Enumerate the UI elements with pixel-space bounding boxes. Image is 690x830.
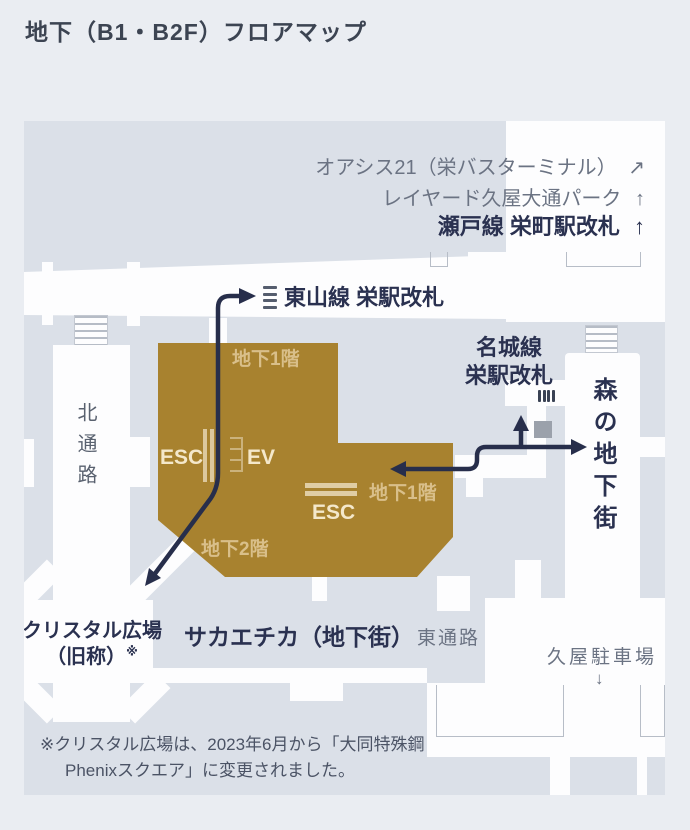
label-crystal-line1: クリスタル広場 xyxy=(24,618,168,644)
dest-meijo-line2: 栄駅改札 xyxy=(448,362,570,390)
footnote-line2: Phenixスクエア」に変更されました。 xyxy=(65,762,355,779)
down-arrow-icon: ↓ xyxy=(595,670,604,687)
dest-meijo-line1: 名城線 xyxy=(448,334,570,362)
floor-map: 地下1階 ESC EV ESC 地下1階 地下2階 オアシス21（栄バスターミナ… xyxy=(24,121,665,795)
label-crystal-line2: （旧称）※ xyxy=(24,644,168,670)
route-meijo-junction xyxy=(402,447,576,469)
dest-layered-park-label: レイヤード久屋大通パーク xyxy=(382,188,621,210)
note-mark: ※ xyxy=(126,644,138,658)
dest-higashiyama: 東山線 栄駅改札 xyxy=(284,287,444,309)
dest-meijo: 名城線 栄駅改札 xyxy=(448,334,570,389)
dest-layered-park: レイヤード久屋大通パーク ↑ xyxy=(382,189,645,209)
dest-setosen: 瀬戸線 栄町駅改札 ↑ xyxy=(438,216,645,238)
arrowhead-left-building xyxy=(390,461,406,477)
dest-mori-chikagai: 森の地下街 xyxy=(590,377,614,537)
page-title: 地下（B1・B2F）フロアマップ xyxy=(25,13,367,47)
arrowhead-up-meijo xyxy=(513,415,529,431)
up-arrow-icon: ↑ xyxy=(634,214,645,239)
footnote-line1: ※クリスタル広場は、2023年6月から「大同特殊鋼 xyxy=(40,736,425,753)
ticket-gate-horizontal-icon xyxy=(263,286,277,309)
dest-setosen-label: 瀬戸線 栄町駅改札 xyxy=(438,214,620,239)
label-higashi-tsuro: 東通路 xyxy=(417,629,480,648)
route-higashiyama-to-b2 xyxy=(154,296,246,575)
arrowhead-right-higashiyama xyxy=(239,288,256,304)
label-kita-tsuro: 北通路 xyxy=(75,402,95,495)
label-hisaya-parking: 久屋駐車場 xyxy=(547,648,657,667)
arrowhead-right-mori xyxy=(571,439,587,455)
up-right-arrow-icon: ↗ xyxy=(628,157,645,179)
label-crystal-plaza: クリスタル広場 （旧称）※ xyxy=(24,618,168,670)
dest-oasis21-label: オアシス21（栄バスターミナル） xyxy=(315,157,616,179)
dest-oasis21: オアシス21（栄バスターミナル） ↗ xyxy=(315,158,645,178)
ticket-gate-vertical-icon xyxy=(538,390,555,402)
label-crystal-former: （旧称） xyxy=(46,646,126,668)
label-sakaechika: サカエチカ（地下街） xyxy=(184,626,414,649)
up-arrow-icon: ↑ xyxy=(635,188,645,210)
